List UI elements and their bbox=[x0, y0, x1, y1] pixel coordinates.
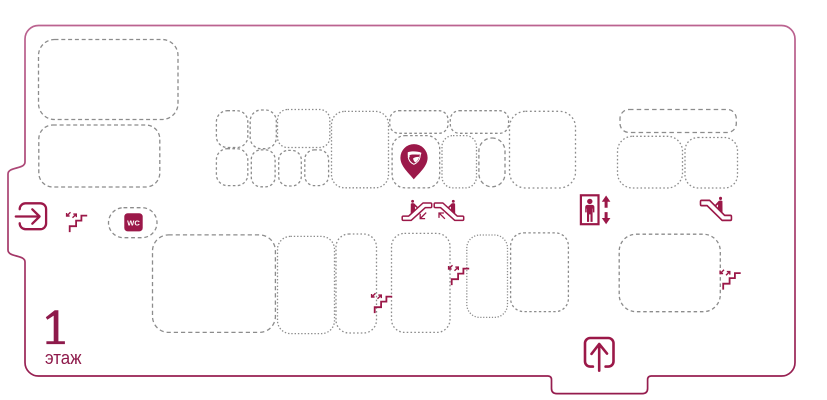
svg-text:этаж: этаж bbox=[45, 348, 82, 368]
svg-text:WC: WC bbox=[127, 219, 140, 228]
